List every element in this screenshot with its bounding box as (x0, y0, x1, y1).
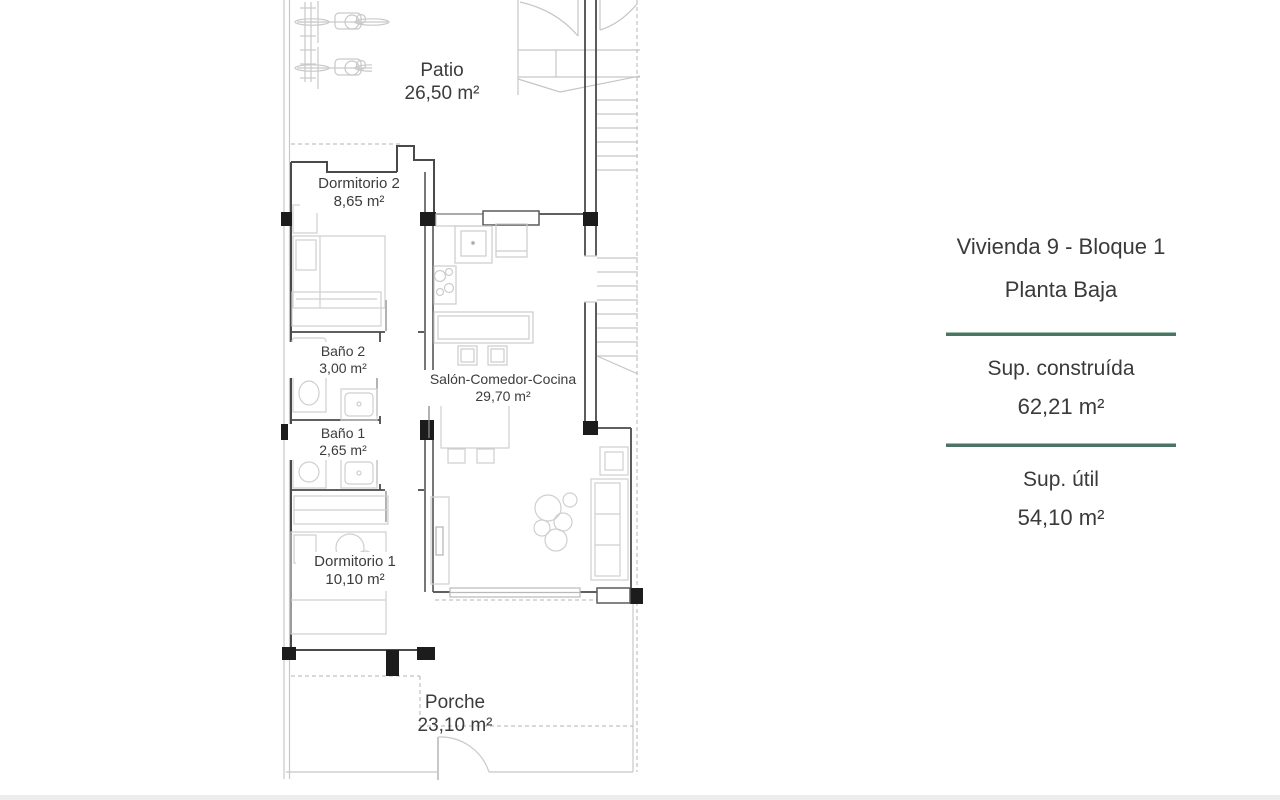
unit-title: Vivienda 9 - Bloque 1 (930, 234, 1192, 260)
fridge-icon (496, 224, 527, 257)
entrance-door-icon (438, 737, 489, 780)
built-area-label: Sup. construída (930, 357, 1192, 381)
kitchen-cabinet-icon (483, 211, 539, 225)
kitchen-island-icon (434, 312, 533, 343)
built-area-value: 62,21 m² (930, 394, 1192, 420)
window (597, 588, 630, 603)
floor-plan-page: Patio 26,50 m² Dormitorio 2 8,65 m² Baño… (0, 0, 1280, 800)
usable-area-label: Sup. útil (930, 468, 1192, 492)
living-icons (431, 389, 628, 584)
room-label-porche: Porche 23,10 m² (388, 690, 522, 738)
room-label-bano2: Baño 2 3,00 m² (288, 342, 398, 378)
sliding-door (450, 588, 630, 603)
bed-icon-dorm2 (292, 205, 385, 326)
stairs-icon (518, 0, 640, 374)
kitchen-icons (434, 211, 539, 365)
door-leaves (377, 300, 429, 522)
usable-area-value: 54,10 m² (930, 505, 1192, 531)
divider-line (946, 443, 1176, 447)
party-wall (583, 0, 631, 592)
floor-name: Planta Baja (930, 277, 1192, 303)
room-label-patio: Patio 26,50 m² (372, 58, 512, 106)
room-label-bano1: Baño 1 2,65 m² (288, 424, 398, 460)
side-table-icon (600, 447, 628, 475)
column (583, 212, 598, 226)
plant-icon (535, 495, 561, 521)
divider-line (946, 332, 1176, 336)
room-label-salon: Salón-Comedor-Cocina 29,70 m² (422, 370, 584, 406)
room-label-dormitorio2: Dormitorio 2 8,65 m² (300, 174, 418, 213)
column (583, 421, 598, 435)
room-label-dormitorio1: Dormitorio 1 10,10 m² (296, 552, 414, 591)
sofa-icon (591, 479, 628, 580)
unit-info-panel: Vivienda 9 - Bloque 1 Planta Baja Sup. c… (930, 234, 1192, 531)
dining-table-icon (441, 404, 509, 448)
